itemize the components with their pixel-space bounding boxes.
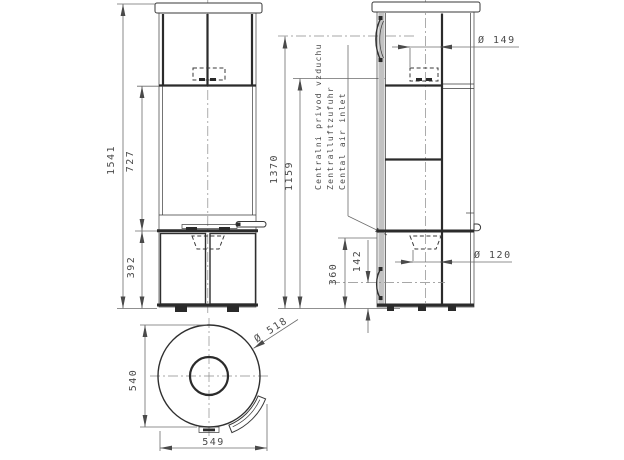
front-door-handle [236,222,266,228]
dim-label-1541: 1541 [106,145,117,175]
air-inlet-label-cz: Centralni privod vzduchu [314,43,323,190]
side-upper-flue-duct [410,68,438,81]
front-dimensions: 1541 727 392 [106,4,159,309]
front-lower-door-left [161,234,206,305]
front-top-cap [155,3,262,13]
front-view [155,0,266,313]
dim-label-392: 392 [126,256,137,279]
d518-annotation: Ø 518 [247,309,298,348]
front-foot-right [227,307,239,313]
front-lower-door-right [210,234,256,305]
dim-label-142: 142 [352,250,363,273]
middle-dimensions: 1370 1159 Centralni privod vzduchu Zentr… [269,36,417,309]
air-inlet-label-en: Cental air inlet [338,92,347,190]
side-rear-knob [474,224,481,231]
dim-label-540: 540 [128,369,139,392]
side-top-cap [372,2,480,12]
drawing-canvas: 1541 727 392 1370 1159 Centralni privod … [0,0,624,460]
dim-label-360: 360 [328,263,339,286]
dim-label-1370: 1370 [269,154,280,184]
dim-label-d518: Ø 518 [252,315,290,346]
air-inlet-annotation: Centralni privod vzduchu Zentralluftzufu… [314,43,387,235]
front-upper-air-duct [193,68,225,81]
dim-label-d120: Ø 120 [474,249,512,261]
dim-label-1159: 1159 [284,161,295,191]
front-foot-left [175,307,187,313]
air-inlet-label-de: Zentralluftzufuhr [326,86,335,190]
dim-label-549: 549 [202,437,225,448]
dim-label-727: 727 [125,150,136,173]
top-handle-arc [229,396,266,433]
dim-label-d149: Ø 149 [478,34,516,46]
technical-drawing-stove: 1541 727 392 1370 1159 Centralni privod … [0,0,624,460]
